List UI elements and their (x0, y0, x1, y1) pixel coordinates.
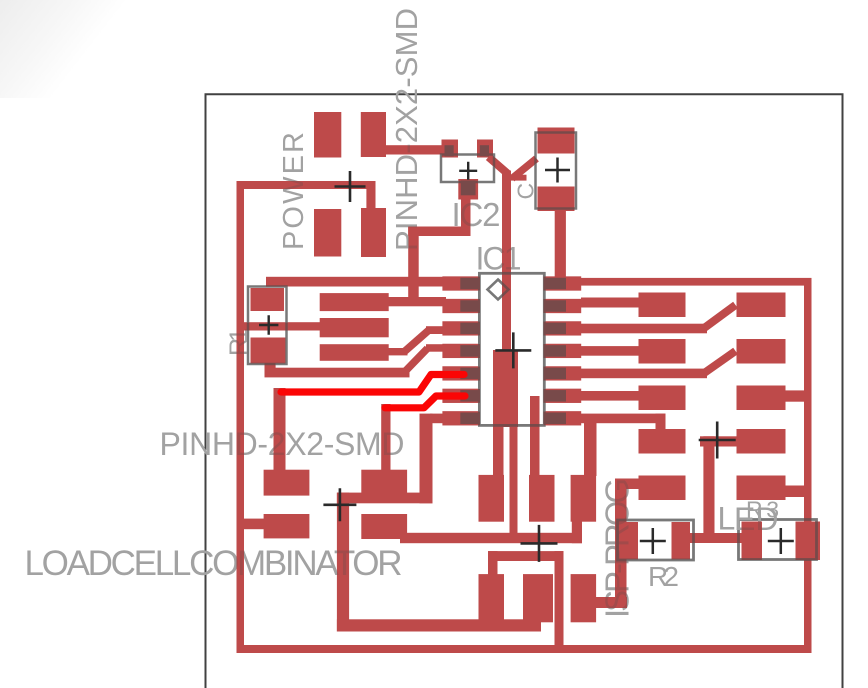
svg-text:R3: R3 (746, 497, 779, 523)
svg-text:R2: R2 (648, 561, 679, 592)
svg-text:PINHD-2X2-SMD: PINHD-2X2-SMD (389, 8, 424, 251)
svg-text:PINHD-2X2-SMD: PINHD-2X2-SMD (160, 426, 405, 462)
svg-text:LOADCELLCOMBINATOR: LOADCELLCOMBINATOR (25, 544, 403, 583)
svg-text:L: L (718, 501, 736, 537)
svg-text:POWER: POWER (278, 132, 310, 250)
svg-text:R1: R1 (225, 328, 253, 356)
svg-text:IC2: IC2 (452, 196, 501, 233)
svg-text:C: C (513, 183, 539, 200)
svg-text:IC1: IC1 (476, 241, 522, 277)
